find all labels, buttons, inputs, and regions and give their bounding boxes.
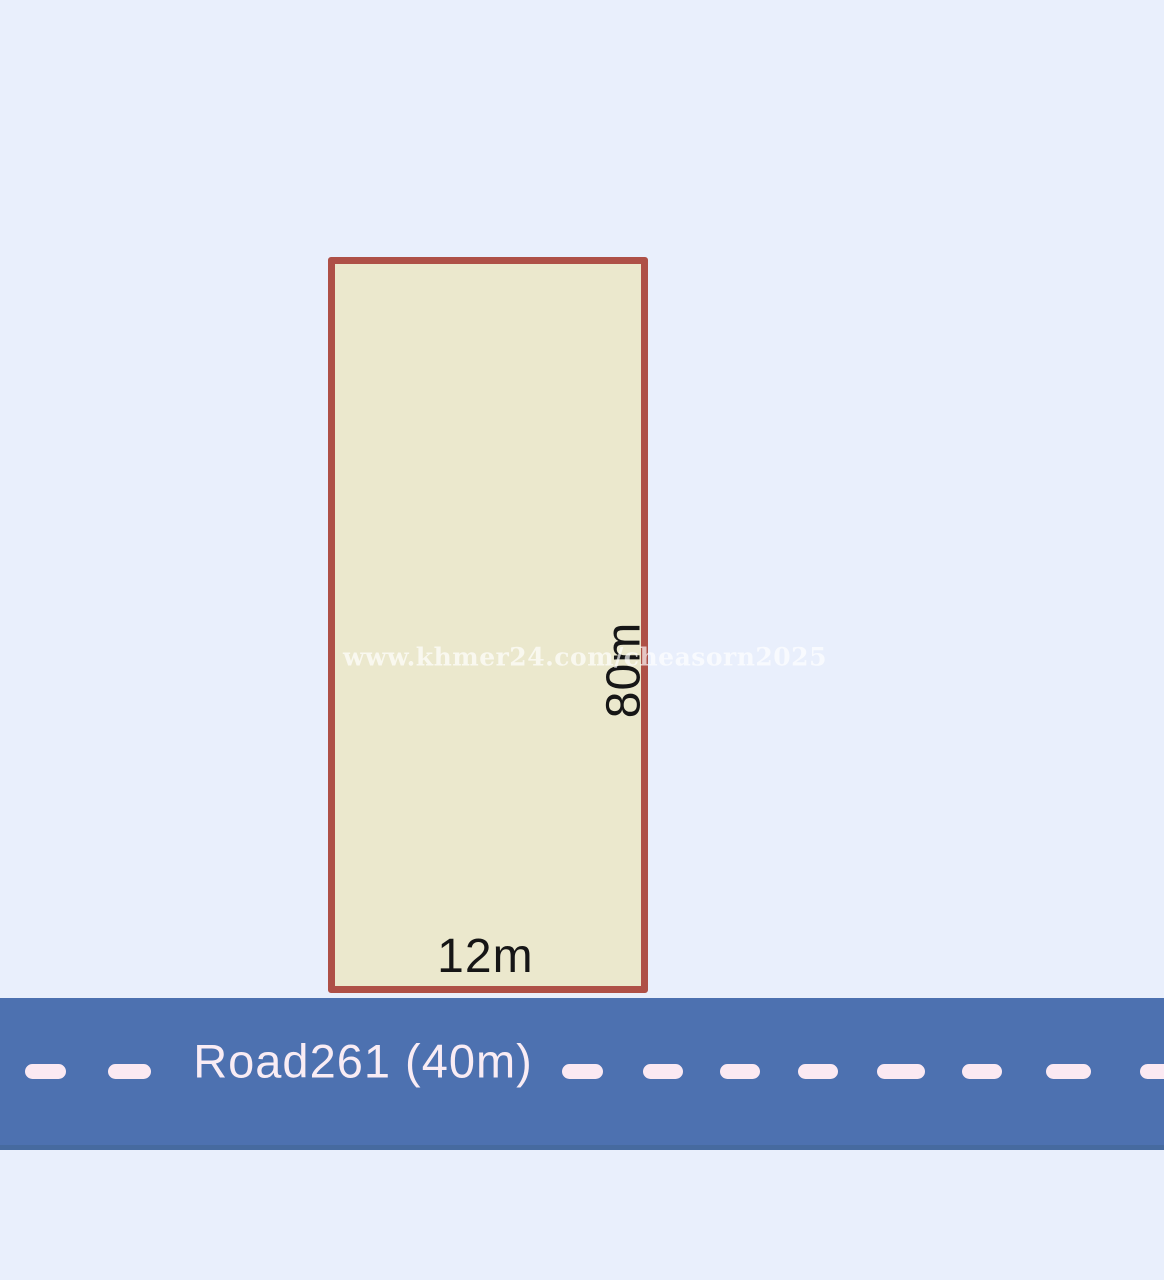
lane-marking-dash [562, 1064, 603, 1079]
land-plot-diagram: 12m 80m www.khmer24.com/cheasorn2025 Roa… [0, 0, 1164, 1280]
lane-marking-dash [877, 1064, 925, 1079]
lane-marking-dash [720, 1064, 760, 1079]
plot-depth-label: 80m [597, 622, 652, 718]
land-plot: 12m 80m [328, 257, 648, 993]
road: Road261 (40m) [0, 998, 1164, 1150]
plot-frontage-label: 12m [437, 929, 533, 984]
lane-marking-dash [25, 1064, 66, 1079]
lane-marking-dash [1046, 1064, 1091, 1079]
lane-marking-dash [108, 1064, 151, 1079]
lane-marking-dash [1140, 1064, 1164, 1079]
lane-marking-dash [798, 1064, 838, 1079]
lane-marking-dash [962, 1064, 1002, 1079]
road-label: Road261 (40m) [193, 1034, 533, 1089]
lane-marking-dash [643, 1064, 683, 1079]
